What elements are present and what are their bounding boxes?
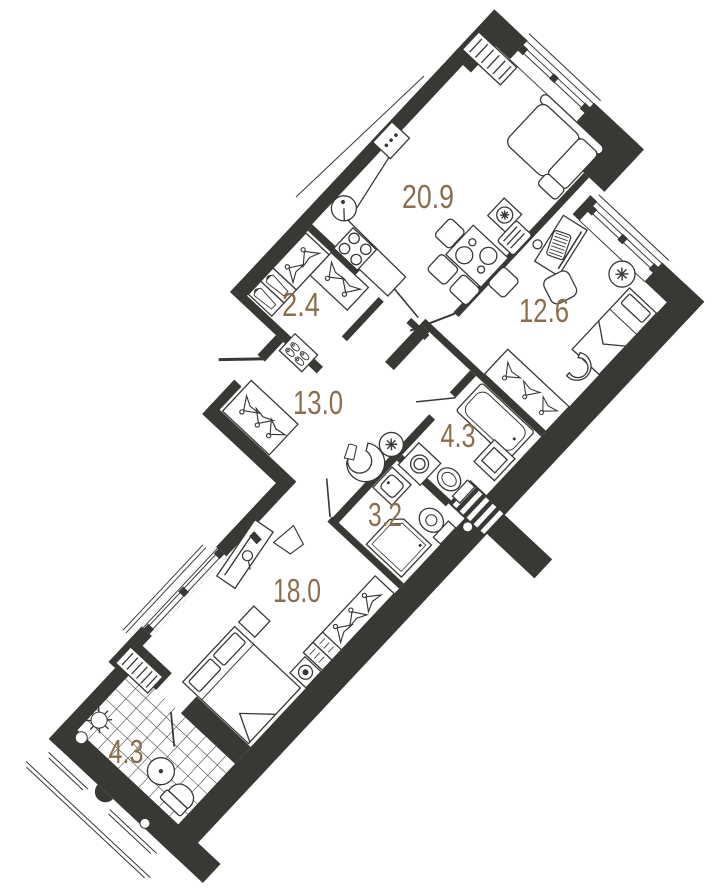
svg-text:13.0: 13.0	[293, 384, 343, 421]
svg-text:2.4: 2.4	[282, 286, 320, 323]
svg-text:18.0: 18.0	[273, 572, 321, 609]
svg-text:4.3: 4.3	[441, 417, 476, 454]
svg-text:20.9: 20.9	[402, 178, 454, 215]
svg-text:12.6: 12.6	[519, 292, 569, 329]
svg-text:4.3: 4.3	[109, 733, 144, 770]
svg-text:3.2: 3.2	[368, 496, 402, 533]
